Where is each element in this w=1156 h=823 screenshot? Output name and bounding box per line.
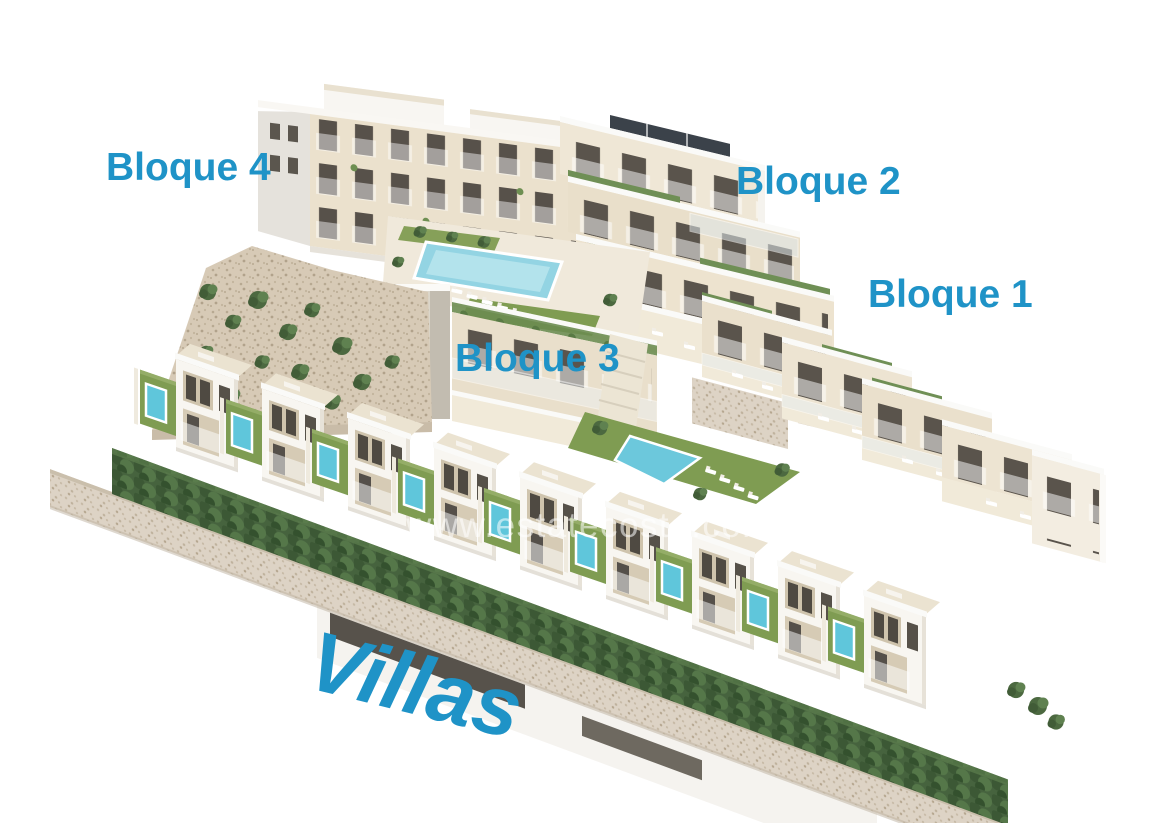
label-bloque-4: Bloque 4 <box>106 146 271 190</box>
bloque1-right-wing <box>1032 449 1106 563</box>
label-bloque-2: Bloque 2 <box>736 160 901 204</box>
development-3d-illustration <box>0 0 1156 823</box>
label-bloque-1: Bloque 1 <box>868 273 1033 317</box>
corner-bushes <box>1007 682 1065 730</box>
real-estate-development-rendering: Bloque 4 Bloque 2 Bloque 1 Bloque 3 Vill… <box>0 0 1156 823</box>
label-bloque-3: Bloque 3 <box>455 337 620 381</box>
watermark-text: www.estatecosta.com <box>406 506 773 546</box>
